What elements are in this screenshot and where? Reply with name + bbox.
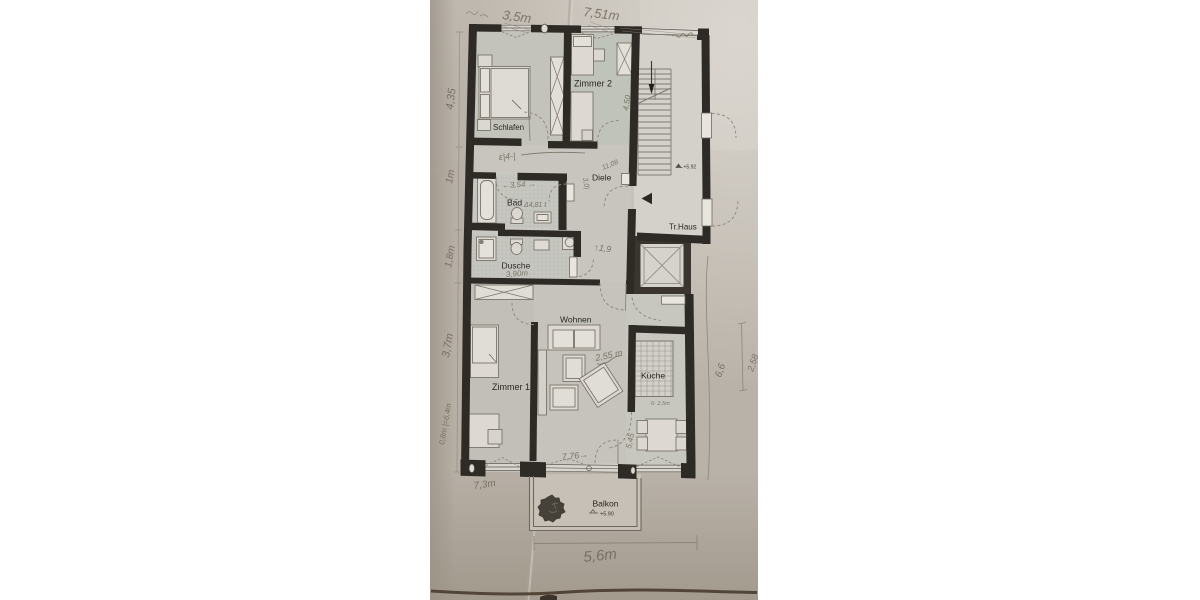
svg-text:Δ4,81 t: Δ4,81 t (523, 202, 547, 209)
svg-text:+5.90: +5.90 (600, 512, 614, 518)
svg-text:Zimmer 1: Zimmer 1 (492, 382, 530, 392)
svg-text:5,6m: 5,6m (583, 546, 618, 566)
svg-text:Bad: Bad (507, 198, 522, 208)
svg-text:Küche: Küche (641, 371, 665, 381)
svg-text:Schlafen: Schlafen (493, 123, 524, 132)
svg-text:+5.92: +5.92 (684, 165, 697, 171)
svg-text:Zimmer 2: Zimmer 2 (574, 79, 612, 89)
svg-text:ε|4-|: ε|4-| (498, 151, 515, 162)
svg-text:6· 2,5m: 6· 2,5m (651, 401, 670, 407)
svg-text:Balkon: Balkon (593, 499, 619, 509)
svg-text:Wohnen: Wohnen (560, 315, 592, 325)
svg-text:3,90m: 3,90m (506, 268, 529, 279)
svg-text:Diele: Diele (592, 173, 612, 183)
svg-text:Tr.Haus: Tr.Haus (669, 223, 697, 232)
svg-text:←3,54 →: ←3,54 → (502, 179, 536, 190)
